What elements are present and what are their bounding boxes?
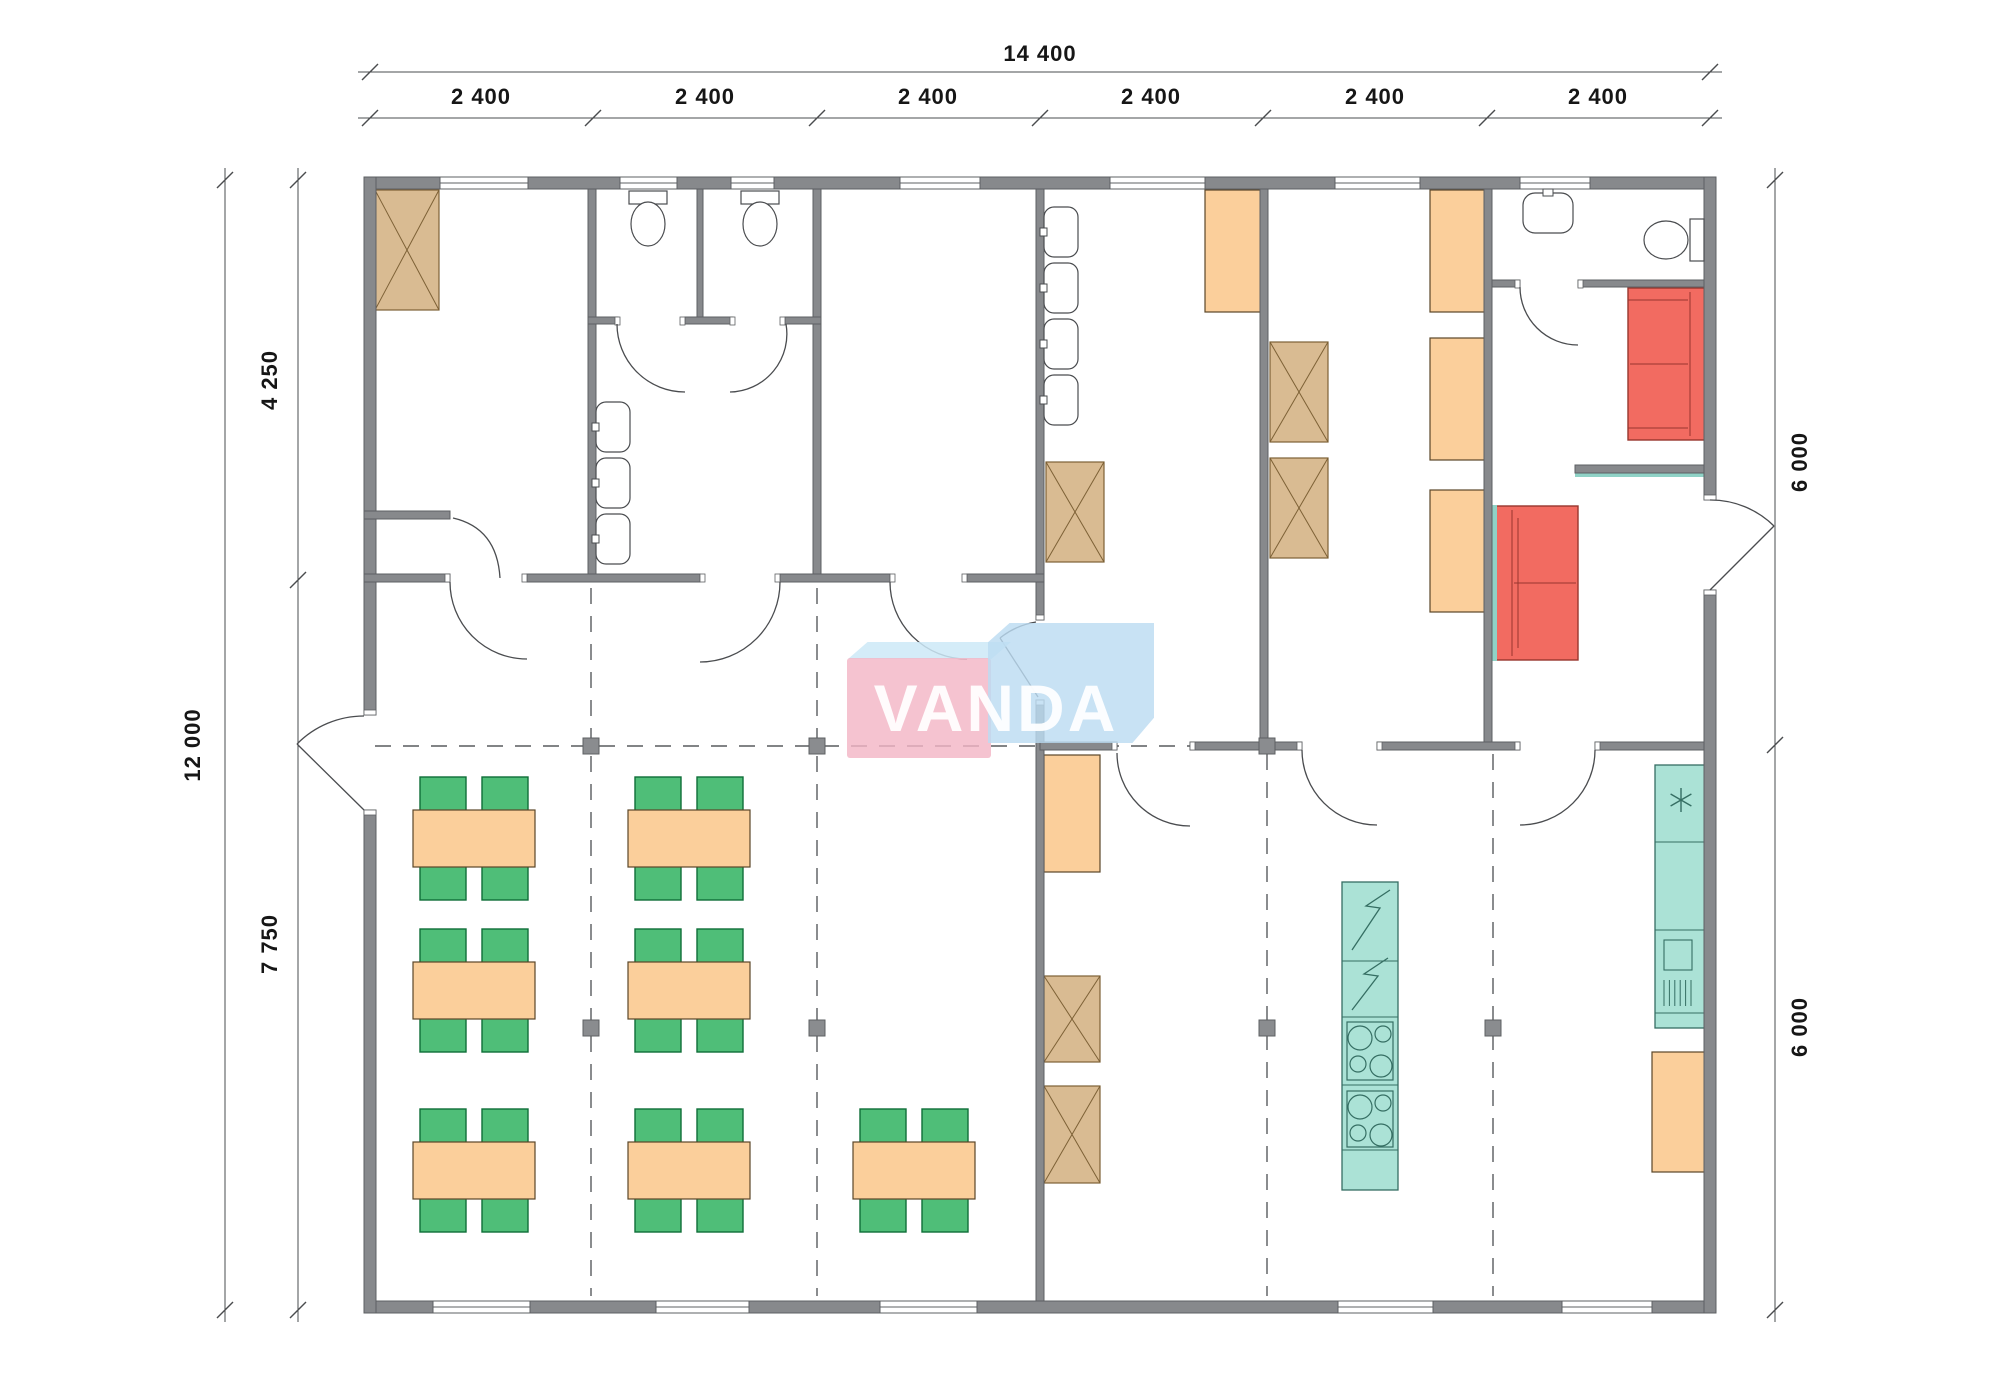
toilet-tank [1690,219,1704,261]
door-jamb [1515,742,1520,750]
door-arc [617,324,685,392]
washbasin [1044,207,1078,257]
dining-table [628,810,750,867]
wall [527,574,700,582]
dining-table [413,810,535,867]
chair [860,1109,906,1145]
wall [1704,590,1716,1313]
door-jamb [890,574,895,582]
column-marker [1259,738,1275,754]
wardrobe-cabinet [1430,190,1486,312]
door-arc [450,582,527,659]
door-jamb [1515,280,1520,288]
washbasin-tap [1040,228,1047,236]
washbasin [596,458,630,508]
wall [1595,742,1704,750]
door-jamb [1112,742,1117,750]
door-jamb [775,574,780,582]
kitchen-island [1342,882,1398,1190]
door-jamb [1036,700,1044,705]
wall [364,574,450,582]
floor-plan-page: 14 400 2 400 2 400 2 400 2 400 2 400 2 4… [0,0,2000,1380]
door-jamb [364,810,376,815]
door-jamb [700,574,705,582]
wall [967,574,1044,582]
wall [364,177,1716,189]
wall [685,317,733,324]
washbasin-tap [592,535,599,543]
washbasin-tap [1040,396,1047,404]
wall [1036,700,1044,1301]
wall [364,177,376,715]
door-jamb [780,317,785,325]
chair [420,1109,466,1145]
wardrobe-cabinet [1044,755,1100,872]
door-arc [1302,750,1377,825]
chair [635,929,681,965]
chair [420,777,466,813]
washbasin-tap [592,423,599,431]
door-leaf [1000,638,1038,697]
door-arc [1520,287,1578,345]
wall [1260,189,1268,750]
washbasin [596,402,630,452]
chair [860,1196,906,1232]
wall [1578,280,1704,287]
dining-table [413,1142,535,1199]
wall [813,189,821,574]
dim-label-segment-3: 2 400 [898,84,958,110]
chair [697,929,743,965]
washbasin [596,514,630,564]
column-marker [809,738,825,754]
dim-label-left-top: 4 250 [257,350,283,410]
wardrobe-cabinet [1430,490,1486,612]
door-jamb [445,574,450,582]
wall [780,574,890,582]
dining-table [413,962,535,1019]
wall [1704,177,1716,500]
floor-plan-drawing [0,0,2000,1380]
chair [420,864,466,900]
chair [697,1196,743,1232]
door-jamb [1595,742,1600,750]
chair [482,1016,528,1052]
door-jamb [1704,590,1716,595]
washbasin-tap [1543,189,1553,196]
dim-label-segment-2: 2 400 [675,84,735,110]
door-arc [1710,500,1774,526]
door-jamb [615,317,620,325]
dim-label-left-bottom: 7 750 [257,914,283,974]
column-marker [583,1020,599,1036]
door-arc [730,324,787,392]
door-jamb [962,574,967,582]
dim-label-right-bottom: 6 000 [1787,997,1813,1057]
door-jamb [1190,742,1195,750]
door-leaf [297,744,364,810]
washbasin [1044,375,1078,425]
wall [364,1301,1716,1313]
chair [922,1109,968,1145]
dim-label-total-width: 14 400 [1003,41,1076,67]
column-marker [583,738,599,754]
chair [697,777,743,813]
wardrobe-cabinet [1430,338,1486,460]
wall [697,189,703,320]
door-arc [1117,753,1190,826]
door-arc [700,582,780,662]
door-jamb [730,317,735,325]
door-arc [1000,622,1036,638]
washbasin-tap [592,479,599,487]
wall [364,511,450,519]
dim-label-segment-1: 2 400 [451,84,511,110]
wardrobe-cabinet [1205,190,1263,312]
chair [635,1196,681,1232]
door-jamb [1036,615,1044,620]
chair [635,1109,681,1145]
door-arc [1520,750,1595,825]
wall [1040,742,1117,750]
door-jamb [680,317,685,325]
washbasin [1523,193,1573,233]
chair [635,864,681,900]
chair [635,1016,681,1052]
door-jamb [1377,742,1382,750]
dining-table [853,1142,975,1199]
door-arc [890,582,967,659]
chair [482,1109,528,1145]
wall [588,189,596,574]
chair [420,1016,466,1052]
glazing-strip [1492,505,1497,661]
chair [482,929,528,965]
chair [697,1109,743,1145]
chair [420,1196,466,1232]
wall [364,810,376,1313]
wall [1190,742,1302,750]
dining-table [628,1142,750,1199]
wall [785,317,821,324]
toilet-bowl [631,202,665,246]
door-jamb [522,574,527,582]
door-arc [297,716,364,744]
column-marker [809,1020,825,1036]
chair [482,1196,528,1232]
door-leaf [1710,526,1774,590]
wall [1575,465,1704,473]
wardrobe-cabinet [1652,1052,1708,1172]
chair [482,777,528,813]
dim-label-segment-6: 2 400 [1568,84,1628,110]
column-marker [1259,1020,1275,1036]
washbasin-tap [1040,340,1047,348]
door-jamb [364,710,376,715]
dim-label-total-height: 12 000 [180,708,206,781]
wall [1484,189,1492,750]
chair [922,1196,968,1232]
dining-table [628,962,750,1019]
washbasin-tap [1040,284,1047,292]
door-jamb [1297,742,1302,750]
door-arc [453,518,500,578]
chair [635,777,681,813]
washbasin [1044,263,1078,313]
toilet-bowl [1644,221,1688,259]
glazing-strip [1575,473,1704,477]
dim-label-segment-4: 2 400 [1121,84,1181,110]
door-jamb [1704,495,1716,500]
toilet-bowl [743,202,777,246]
dim-label-segment-5: 2 400 [1345,84,1405,110]
column-marker [1485,1020,1501,1036]
door-jamb [1578,280,1583,288]
chair [482,864,528,900]
chair [420,929,466,965]
wall [588,317,618,324]
wall [1377,742,1520,750]
chair [697,1016,743,1052]
chair [697,864,743,900]
dim-label-right-top: 6 000 [1787,432,1813,492]
washbasin [1044,319,1078,369]
